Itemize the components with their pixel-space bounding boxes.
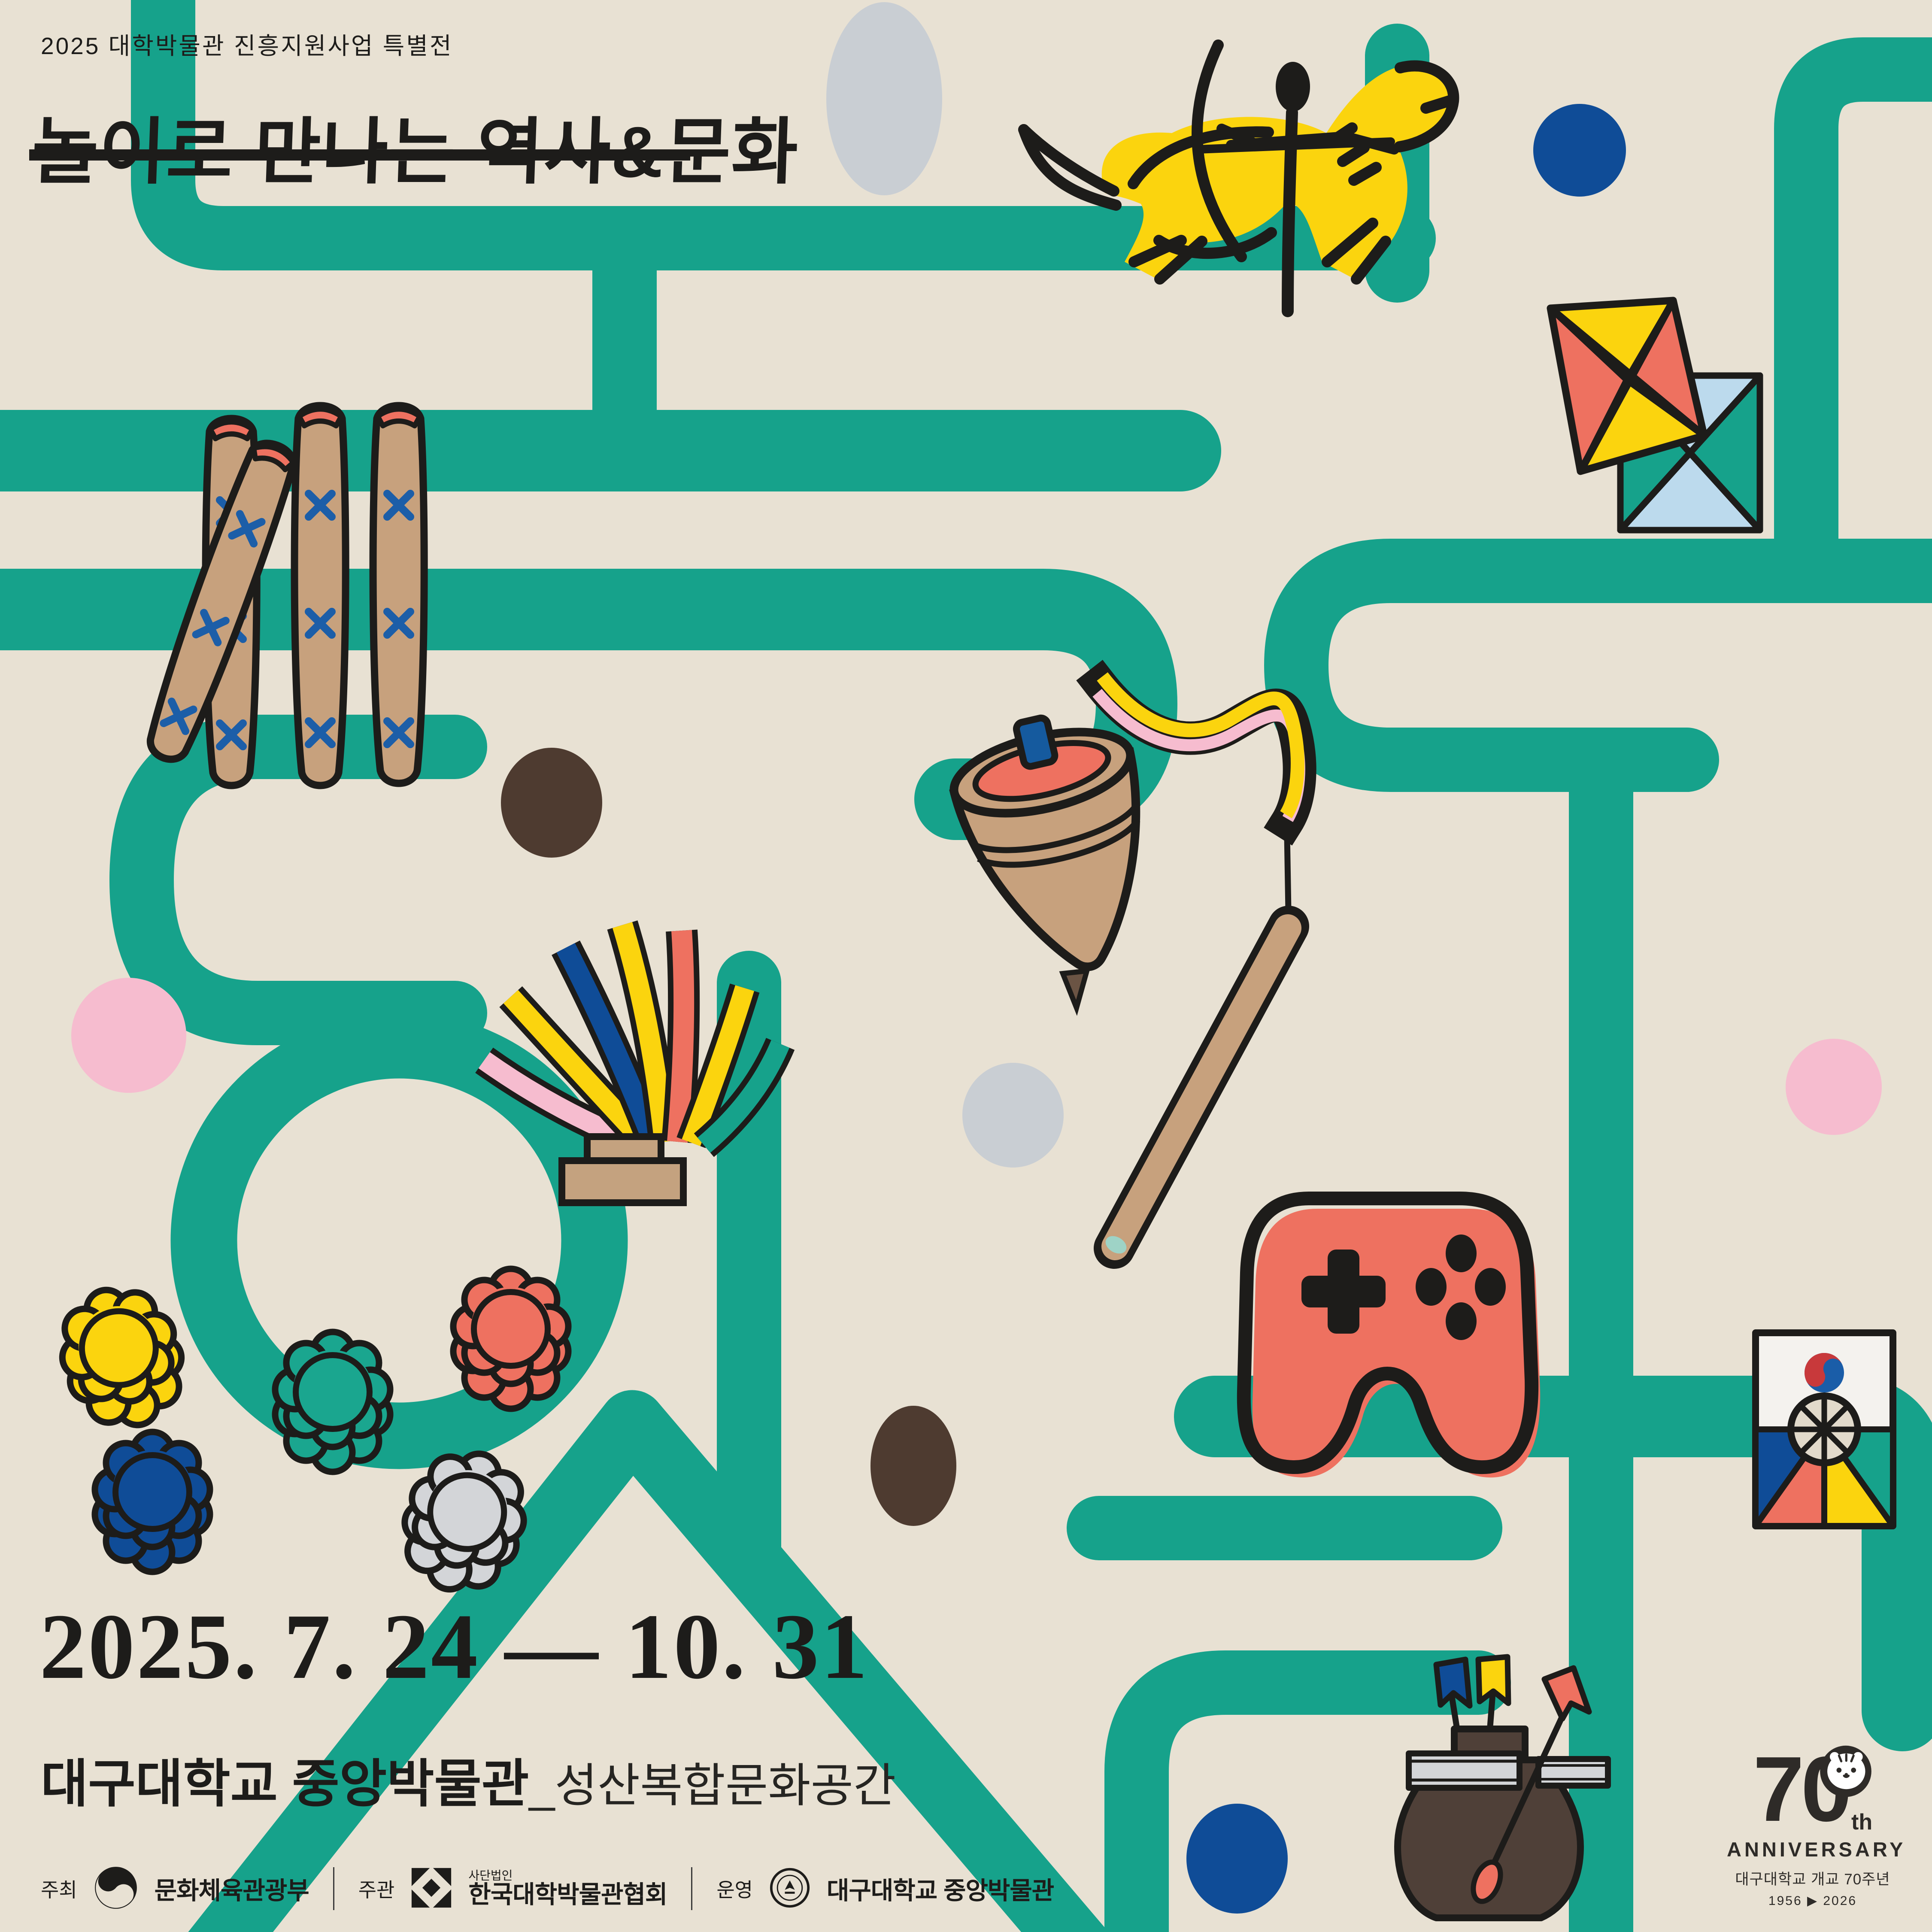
spinning-top-icon [942, 676, 1299, 1257]
tilted-kite [1550, 300, 1704, 471]
venue-main: 대구대학교 중앙박물관 [41, 1755, 529, 1813]
game-piece-yellow [45, 1273, 198, 1442]
venue-sub: _성산복합문화공간 [529, 1759, 896, 1811]
archer-head [1276, 62, 1310, 112]
anniversary-word: ANNIVERSARY [1727, 1838, 1899, 1861]
game-piece-coral [453, 1269, 568, 1409]
yut-stick [373, 406, 424, 783]
dot-gray-top [826, 2, 942, 195]
anniversary-years: 1956 ▶ 2026 [1727, 1893, 1899, 1908]
game-piece-teal [275, 1332, 390, 1472]
top-tip [1063, 971, 1087, 1008]
game-piece-navy [95, 1432, 210, 1572]
taegeuk-ministry-icon [94, 1865, 138, 1912]
anniversary-70: 70 th [1727, 1745, 1899, 1835]
organizer-text: 사단법인 한국대학박물관협회 [468, 1869, 667, 1908]
anniversary-suffix: th [1851, 1809, 1872, 1835]
operator-label: 운영 [716, 1874, 753, 1903]
kites-icon [1550, 300, 1760, 530]
maze-right-scurve [1296, 571, 1932, 760]
dot-navy-right [1533, 104, 1626, 197]
museum-association-icon [411, 1867, 452, 1911]
anniversary-line1: 대구대학교 개교 70주년 [1727, 1867, 1899, 1889]
eyebrow-text: 2025 대학박물관 진흥지원사업 특별전 [41, 27, 453, 61]
host-name: 문화체육관광부 [155, 1871, 309, 1906]
yut-stick [294, 406, 346, 786]
host-label: 주최 [41, 1874, 77, 1903]
organizer-label: 주관 [358, 1874, 395, 1903]
shield-kite-icon [1756, 1333, 1893, 1526]
dot-pink-left [71, 978, 186, 1093]
university-seal-icon [769, 1867, 810, 1911]
maze-left-u [142, 747, 455, 1013]
organizer-name: 한국대학박물관협회 [468, 1882, 667, 1908]
poster-title: 놀이로 만나는 역사&문화 [30, 94, 801, 198]
title-underline [29, 149, 690, 161]
exhibition-poster: 2025 대학박물관 진흥지원사업 특별전 놀이로 만나는 역사&문화 2025… [0, 0, 1932, 1932]
whip-stick [1115, 928, 1288, 1247]
credits-row: 주최 문화체육관광부 주관 사단법인 한국대학박물관협회 운영 [41, 1859, 1054, 1919]
anniversary-logo: 70 th ANNIVERSARY 대구대학교 개교 70주년 1956 ▶ 2… [1727, 1745, 1899, 1908]
tiger-mascot-icon [1818, 1742, 1874, 1800]
dot-navy-bottom [1186, 1804, 1288, 1914]
venue-line: 대구대학교 중앙박물관_성산복합문화공간 [41, 1742, 896, 1817]
dot-brown-left [501, 748, 602, 858]
operator-name: 대구대학교 중앙박물관 [827, 1871, 1054, 1906]
exhibition-dates: 2025. 7. 24 — 10. 31 [39, 1593, 869, 1701]
kite-center-hole [1791, 1396, 1858, 1463]
dot-brown-mid [870, 1406, 956, 1526]
jegi-base [562, 1161, 683, 1203]
dot-gray-mid [962, 1063, 1064, 1168]
dot-pink-right [1786, 1039, 1882, 1135]
footer-divider [691, 1867, 692, 1910]
footer-divider [333, 1867, 334, 1910]
maze-topright-corner [1806, 70, 1932, 571]
tuho-band [1409, 1753, 1608, 1788]
organizer-prefix: 사단법인 [468, 1869, 667, 1882]
